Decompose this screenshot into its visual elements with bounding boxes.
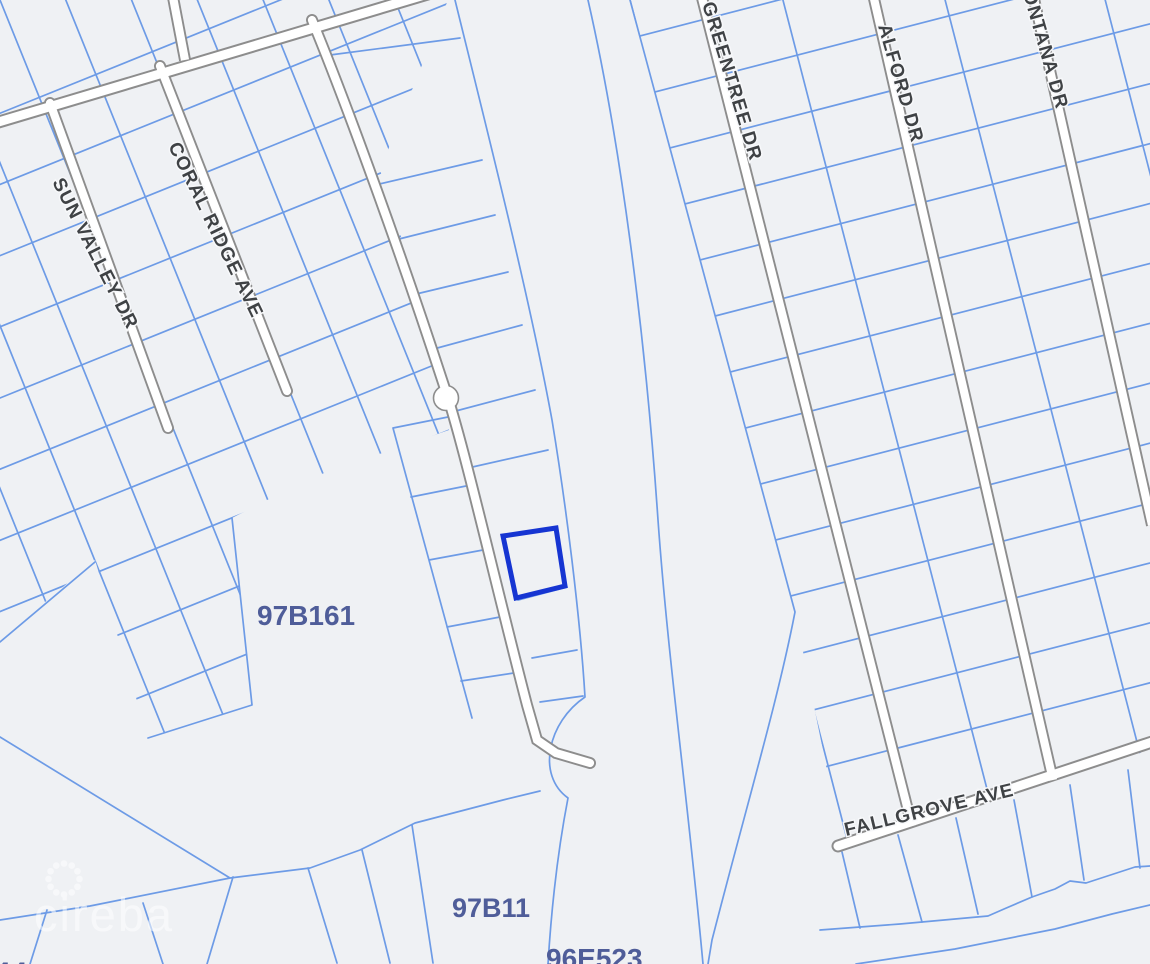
block-label-97B161: 97B161 bbox=[257, 600, 355, 631]
block-label-96E523: 96E523 bbox=[546, 943, 643, 964]
watermark-text: cireba bbox=[34, 888, 174, 941]
block-label-97B8: 97B8 bbox=[262, 959, 329, 964]
map-canvas[interactable]: SUN VALLEY DR CORAL RIDGE AVE GREENTREE … bbox=[0, 0, 1150, 964]
block-label-44: 44 bbox=[0, 957, 28, 964]
block-label-97B11: 97B11 bbox=[452, 893, 530, 923]
